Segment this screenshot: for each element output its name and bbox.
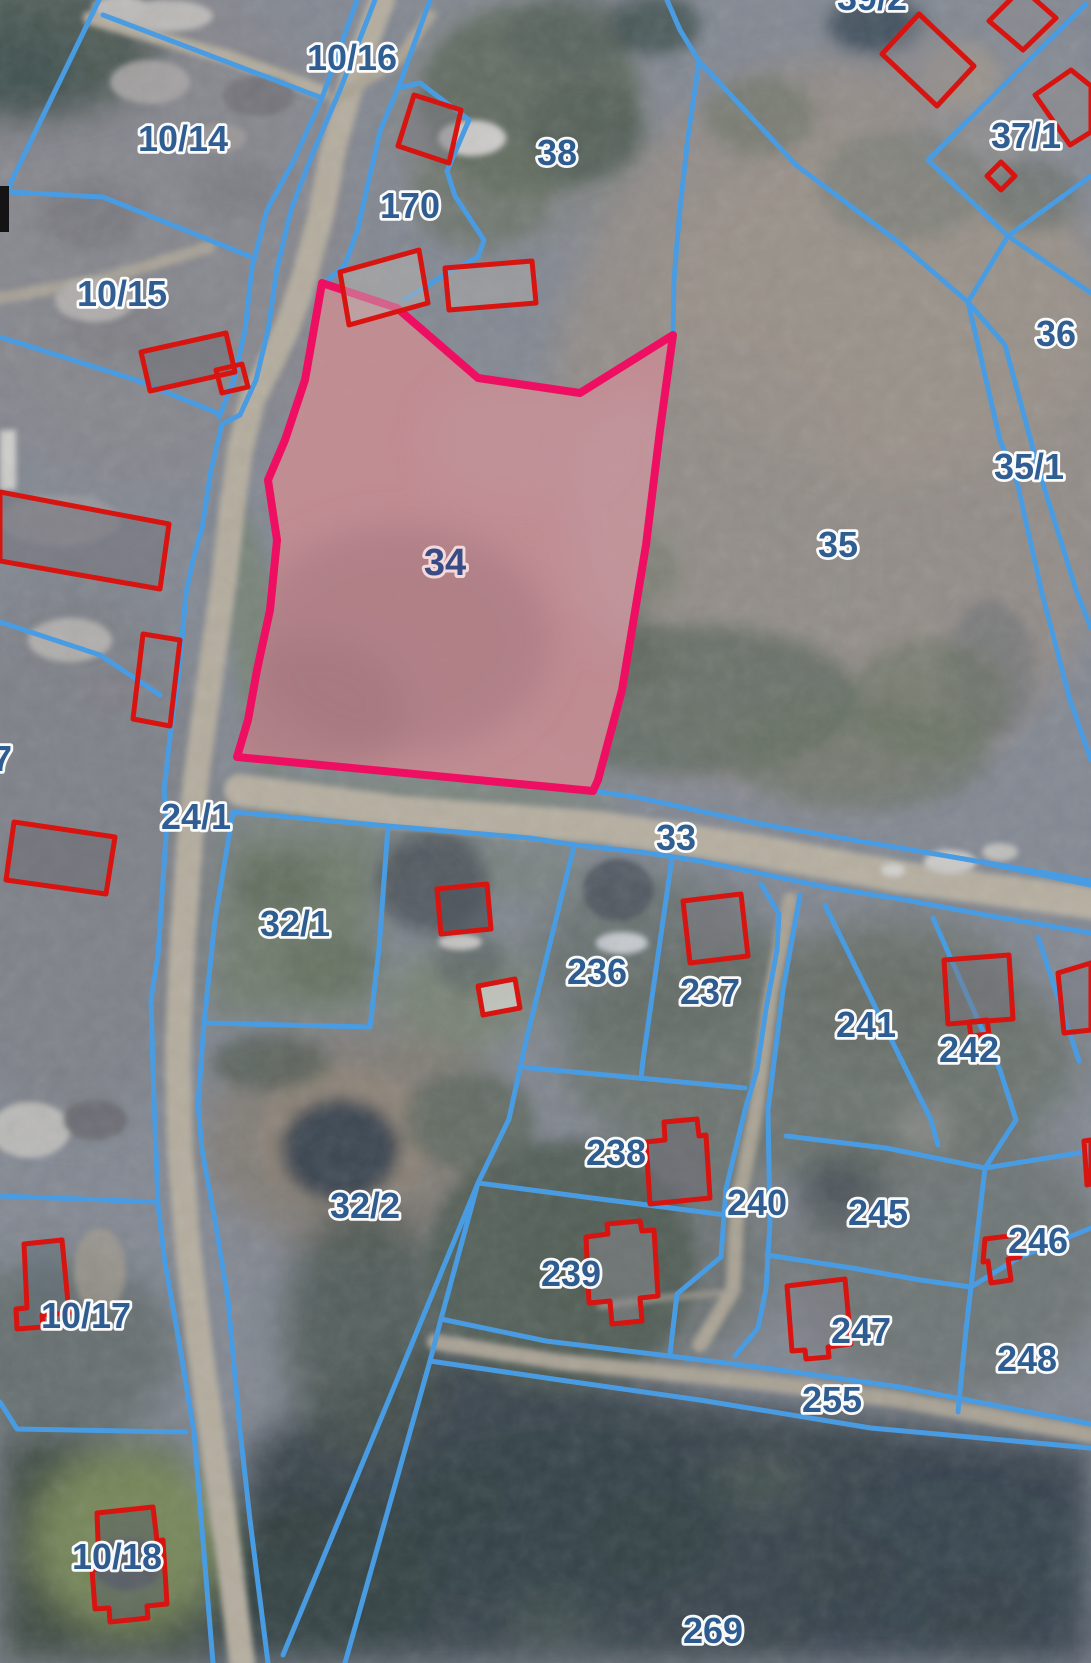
svg-text:170: 170: [380, 185, 440, 226]
svg-text:27: 27: [0, 738, 12, 779]
svg-text:236: 236: [567, 951, 627, 992]
svg-text:255: 255: [802, 1379, 862, 1420]
svg-text:241: 241: [836, 1004, 896, 1045]
svg-text:33: 33: [656, 817, 696, 858]
svg-text:35/1: 35/1: [994, 446, 1064, 487]
svg-text:246: 246: [1008, 1220, 1068, 1261]
svg-text:247: 247: [831, 1310, 891, 1351]
svg-text:242: 242: [939, 1029, 999, 1070]
svg-text:10/16: 10/16: [307, 37, 397, 78]
svg-text:245: 245: [848, 1192, 908, 1233]
svg-text:32/1: 32/1: [260, 903, 330, 944]
svg-text:237: 237: [680, 971, 740, 1012]
svg-text:248: 248: [997, 1338, 1057, 1379]
svg-text:34: 34: [424, 542, 466, 584]
svg-text:37/1: 37/1: [991, 115, 1061, 156]
svg-text:269: 269: [683, 1610, 743, 1651]
svg-text:24/1: 24/1: [161, 796, 231, 837]
svg-text:38: 38: [537, 132, 577, 173]
svg-text:39/2: 39/2: [837, 0, 907, 18]
svg-text:10/18: 10/18: [72, 1536, 162, 1577]
svg-text:10/15: 10/15: [77, 273, 167, 314]
svg-text:239: 239: [541, 1253, 601, 1294]
svg-text:32/2: 32/2: [330, 1185, 400, 1226]
svg-text:10/17: 10/17: [41, 1295, 131, 1336]
svg-text:238: 238: [586, 1132, 646, 1173]
svg-text:10/14: 10/14: [138, 118, 228, 159]
svg-text:240: 240: [727, 1182, 787, 1223]
svg-text:35: 35: [818, 524, 858, 565]
svg-text:36: 36: [1036, 313, 1076, 354]
